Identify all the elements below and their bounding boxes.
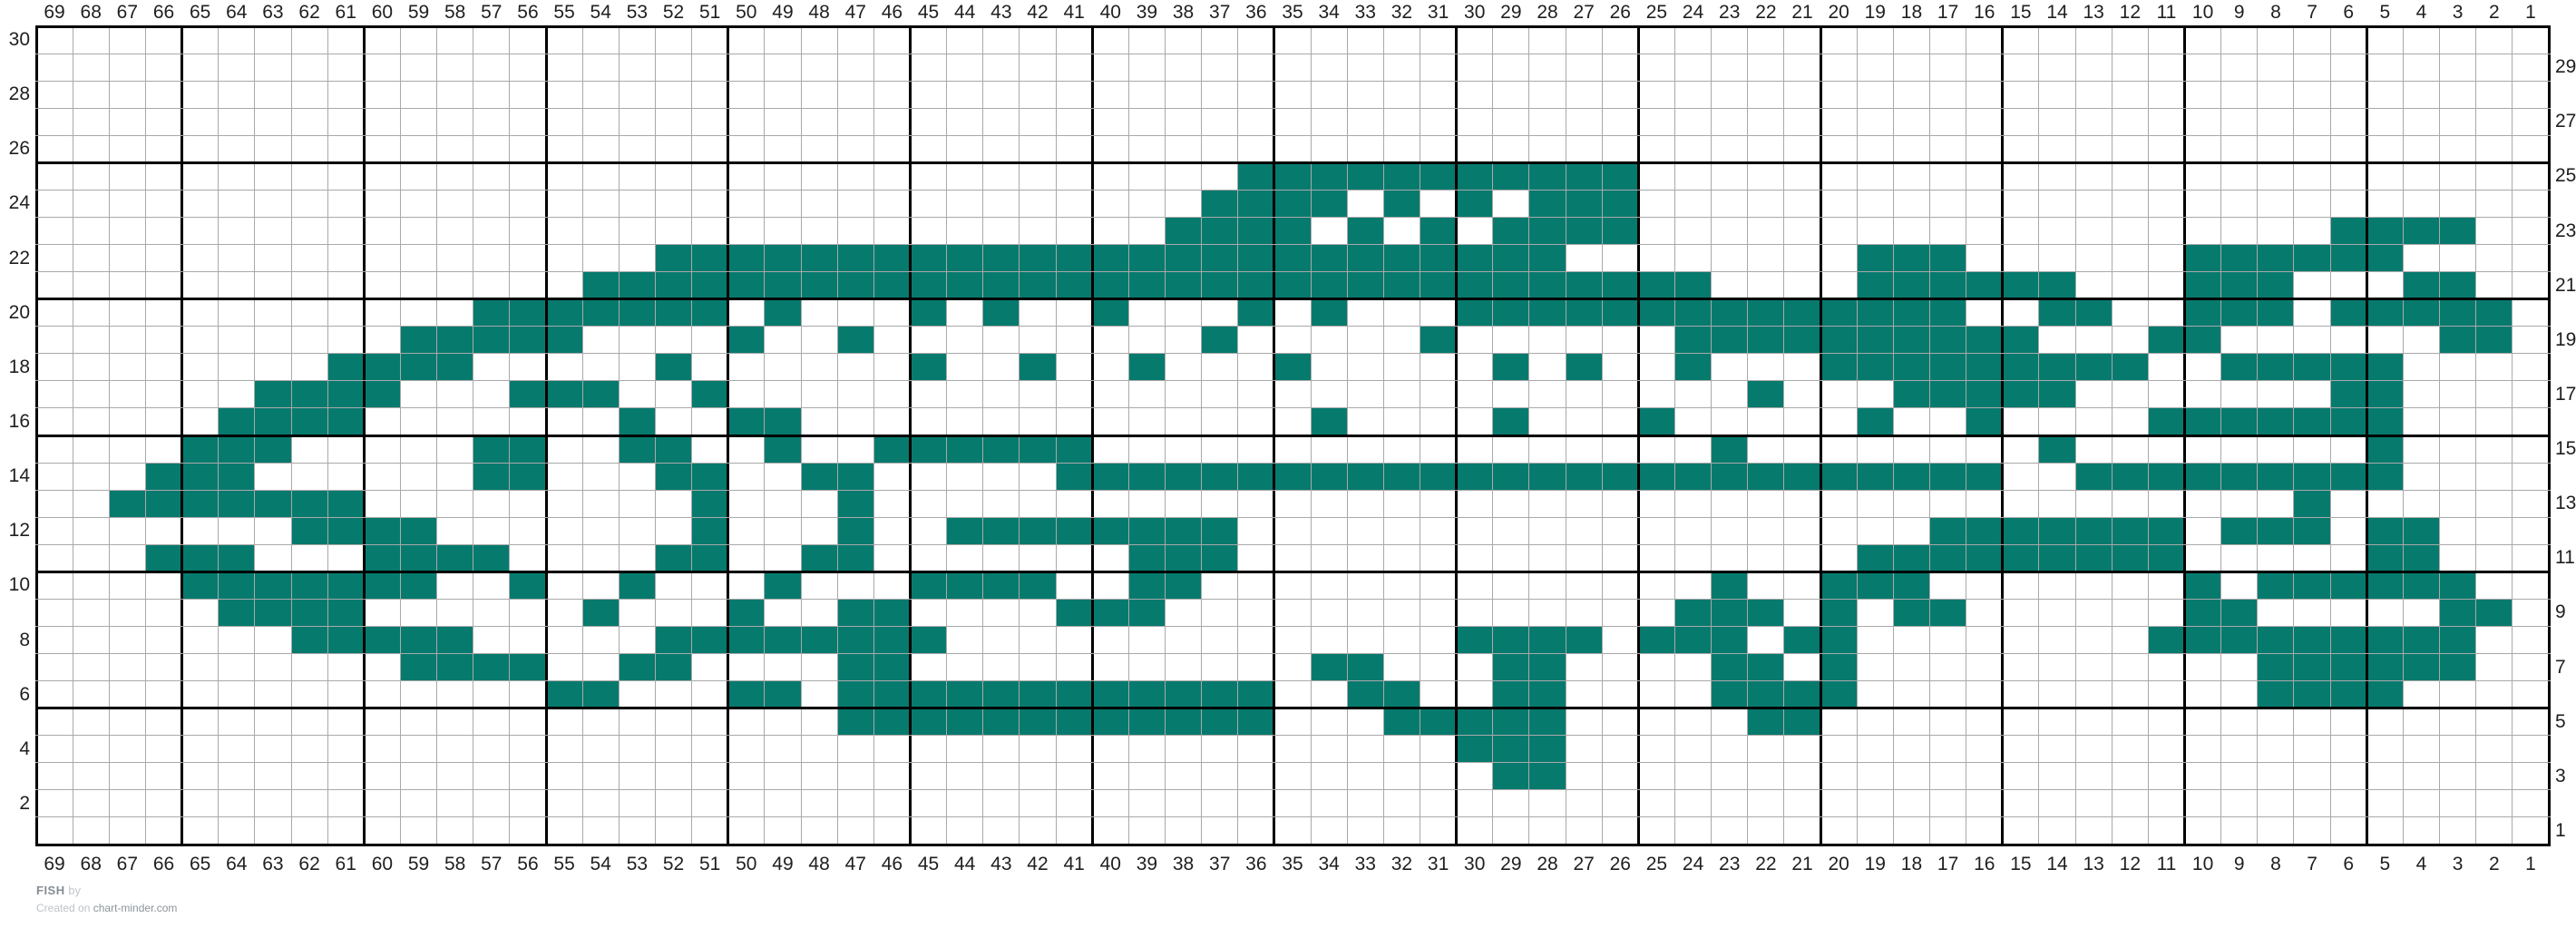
chart-cell[interactable]	[219, 490, 256, 518]
chart-cell[interactable]	[1820, 654, 1858, 682]
chart-cell[interactable]	[1493, 681, 1530, 709]
chart-cell[interactable]	[655, 354, 692, 382]
chart-cell[interactable]	[837, 517, 874, 545]
chart-cell[interactable]	[2366, 354, 2404, 382]
chart-cell[interactable]	[1820, 463, 1858, 491]
chart-cell[interactable]	[1165, 544, 1202, 572]
chart-cell[interactable]	[2185, 599, 2222, 627]
chart-cell[interactable]	[655, 654, 692, 682]
chart-cell[interactable]	[400, 654, 437, 682]
chart-cell[interactable]	[1383, 681, 1420, 709]
chart-cell[interactable]	[1202, 544, 1239, 572]
chart-cell[interactable]	[1347, 217, 1384, 245]
chart-cell[interactable]	[255, 435, 292, 464]
chart-cell[interactable]	[2148, 517, 2185, 545]
chart-cell[interactable]	[873, 435, 911, 464]
chart-cell[interactable]	[1347, 245, 1384, 273]
chart-cell[interactable]	[2003, 544, 2040, 572]
chart-cell[interactable]	[2366, 299, 2404, 327]
chart-cell[interactable]	[1784, 463, 1821, 491]
chart-cell[interactable]	[619, 435, 656, 464]
chart-cell[interactable]	[1457, 708, 1494, 737]
chart-cell[interactable]	[145, 544, 182, 572]
chart-cell[interactable]	[765, 408, 802, 436]
chart-cell[interactable]	[1748, 381, 1785, 409]
chart-cell[interactable]	[2039, 544, 2076, 572]
chart-cell[interactable]	[1056, 599, 1093, 627]
chart-cell[interactable]	[1457, 272, 1494, 300]
chart-cell[interactable]	[1930, 517, 1967, 545]
chart-cell[interactable]	[1529, 626, 1566, 654]
chart-cell[interactable]	[1602, 190, 1639, 218]
chart-cell[interactable]	[2258, 463, 2295, 491]
chart-cell[interactable]	[873, 245, 911, 273]
chart-cell[interactable]	[546, 681, 583, 709]
chart-cell[interactable]	[983, 245, 1020, 273]
chart-cell[interactable]	[1930, 354, 1967, 382]
chart-cell[interactable]	[765, 272, 802, 300]
chart-cell[interactable]	[801, 463, 838, 491]
chart-cell[interactable]	[2440, 327, 2477, 355]
chart-cell[interactable]	[1966, 381, 2004, 409]
site-link[interactable]: chart-minder.com	[93, 902, 178, 914]
chart-cell[interactable]	[1602, 217, 1639, 245]
chart-cell[interactable]	[1202, 463, 1239, 491]
chart-cell[interactable]	[765, 571, 802, 600]
chart-cell[interactable]	[1238, 708, 1275, 737]
chart-cell[interactable]	[1748, 299, 1785, 327]
chart-cell[interactable]	[473, 299, 511, 327]
chart-cell[interactable]	[1238, 162, 1275, 190]
chart-cell[interactable]	[655, 299, 692, 327]
chart-cell[interactable]	[1056, 517, 1093, 545]
chart-cell[interactable]	[1092, 681, 1129, 709]
chart-cell[interactable]	[801, 272, 838, 300]
chart-cell[interactable]	[1930, 245, 1967, 273]
chart-cell[interactable]	[947, 708, 984, 737]
chart-cell[interactable]	[1930, 381, 1967, 409]
chart-cell[interactable]	[1529, 681, 1566, 709]
chart-cell[interactable]	[1311, 463, 1348, 491]
chart-cell[interactable]	[1566, 217, 1603, 245]
chart-cell[interactable]	[437, 626, 474, 654]
chart-cell[interactable]	[1675, 354, 1712, 382]
chart-cell[interactable]	[1092, 299, 1129, 327]
chart-cell[interactable]	[1238, 245, 1275, 273]
chart-cell[interactable]	[582, 599, 620, 627]
chart-cell[interactable]	[655, 544, 692, 572]
chart-cell[interactable]	[2294, 517, 2331, 545]
chart-cell[interactable]	[1202, 217, 1239, 245]
chart-cell[interactable]	[1712, 299, 1749, 327]
chart-cell[interactable]	[1529, 763, 1566, 791]
chart-cell[interactable]	[765, 681, 802, 709]
chart-cell[interactable]	[1457, 463, 1494, 491]
chart-cell[interactable]	[2039, 381, 2076, 409]
chart-cell[interactable]	[1165, 571, 1202, 600]
chart-cell[interactable]	[1857, 272, 1894, 300]
chart-cell[interactable]	[219, 599, 256, 627]
chart-cell[interactable]	[2185, 571, 2222, 600]
chart-cell[interactable]	[2330, 408, 2367, 436]
chart-cell[interactable]	[182, 463, 220, 491]
chart-cell[interactable]	[1165, 708, 1202, 737]
chart-cell[interactable]	[837, 626, 874, 654]
chart-cell[interactable]	[582, 299, 620, 327]
chart-cell[interactable]	[1748, 654, 1785, 682]
chart-cell[interactable]	[2403, 626, 2440, 654]
chart-cell[interactable]	[1092, 245, 1129, 273]
chart-cell[interactable]	[619, 654, 656, 682]
chart-cell[interactable]	[364, 381, 401, 409]
chart-cell[interactable]	[728, 626, 766, 654]
chart-cell[interactable]	[1020, 354, 1057, 382]
chart-cell[interactable]	[1930, 272, 1967, 300]
chart-cell[interactable]	[2003, 381, 2040, 409]
chart-cell[interactable]	[2440, 599, 2477, 627]
chart-cell[interactable]	[2330, 654, 2367, 682]
chart-cell[interactable]	[2366, 517, 2404, 545]
chart-cell[interactable]	[1128, 599, 1166, 627]
chart-cell[interactable]	[1675, 327, 1712, 355]
chart-cell[interactable]	[510, 299, 547, 327]
chart-cell[interactable]	[1529, 736, 1566, 764]
chart-cell[interactable]	[1311, 299, 1348, 327]
chart-cell[interactable]	[1274, 217, 1312, 245]
chart-cell[interactable]	[546, 299, 583, 327]
chart-cell[interactable]	[510, 327, 547, 355]
chart-cell[interactable]	[510, 435, 547, 464]
chart-cell[interactable]	[910, 571, 947, 600]
chart-cell[interactable]	[1493, 217, 1530, 245]
chart-cell[interactable]	[2476, 327, 2513, 355]
chart-cell[interactable]	[2075, 354, 2113, 382]
chart-cell[interactable]	[2185, 299, 2222, 327]
chart-cell[interactable]	[983, 435, 1020, 464]
chart-cell[interactable]	[2294, 681, 2331, 709]
chart-cell[interactable]	[1857, 299, 1894, 327]
chart-cell[interactable]	[1966, 354, 2004, 382]
chart-cell[interactable]	[1820, 681, 1858, 709]
chart-cell[interactable]	[1311, 408, 1348, 436]
chart-cell[interactable]	[2258, 299, 2295, 327]
chart-cell[interactable]	[1638, 272, 1675, 300]
chart-cell[interactable]	[2112, 354, 2149, 382]
chart-cell[interactable]	[1529, 245, 1566, 273]
chart-cell[interactable]	[1493, 245, 1530, 273]
chart-cell[interactable]	[1857, 571, 1894, 600]
chart-cell[interactable]	[1274, 190, 1312, 218]
chart-cell[interactable]	[837, 599, 874, 627]
chart-cell[interactable]	[510, 654, 547, 682]
chart-cell[interactable]	[2330, 381, 2367, 409]
chart-cell[interactable]	[910, 354, 947, 382]
chart-cell[interactable]	[1128, 544, 1166, 572]
chart-cell[interactable]	[1238, 299, 1275, 327]
chart-cell[interactable]	[2330, 217, 2367, 245]
chart-cell[interactable]	[1238, 217, 1275, 245]
chart-cell[interactable]	[1930, 299, 1967, 327]
chart-cell[interactable]	[2148, 626, 2185, 654]
chart-cell[interactable]	[2258, 626, 2295, 654]
chart-cell[interactable]	[1893, 245, 1930, 273]
chart-cell[interactable]	[837, 681, 874, 709]
chart-cell[interactable]	[473, 654, 511, 682]
chart-cell[interactable]	[910, 626, 947, 654]
chart-cell[interactable]	[1202, 517, 1239, 545]
chart-cell[interactable]	[1493, 626, 1530, 654]
chart-cell[interactable]	[1056, 463, 1093, 491]
chart-cell[interactable]	[1893, 599, 1930, 627]
chart-cell[interactable]	[1529, 162, 1566, 190]
chart-cell[interactable]	[1457, 162, 1494, 190]
chart-cell[interactable]	[1857, 327, 1894, 355]
chart-cell[interactable]	[1274, 245, 1312, 273]
chart-cell[interactable]	[2366, 571, 2404, 600]
chart-cell[interactable]	[1128, 463, 1166, 491]
chart-cell[interactable]	[837, 654, 874, 682]
chart-cell[interactable]	[327, 381, 365, 409]
chart-cell[interactable]	[983, 517, 1020, 545]
chart-cell[interactable]	[1566, 162, 1603, 190]
chart-cell[interactable]	[1457, 299, 1494, 327]
chart-cell[interactable]	[728, 272, 766, 300]
chart-cell[interactable]	[2003, 354, 2040, 382]
chart-cell[interactable]	[2366, 381, 2404, 409]
chart-cell[interactable]	[910, 435, 947, 464]
chart-cell[interactable]	[1383, 272, 1420, 300]
chart-cell[interactable]	[2221, 463, 2259, 491]
chart-cell[interactable]	[1056, 435, 1093, 464]
chart-cell[interactable]	[2039, 435, 2076, 464]
chart-cell[interactable]	[2440, 571, 2477, 600]
chart-cell[interactable]	[2039, 299, 2076, 327]
chart-cell[interactable]	[1602, 162, 1639, 190]
chart-cell[interactable]	[291, 408, 328, 436]
chart-cell[interactable]	[1893, 544, 1930, 572]
chart-cell[interactable]	[1675, 463, 1712, 491]
chart-cell[interactable]	[2258, 571, 2295, 600]
chart-cell[interactable]	[1128, 708, 1166, 737]
chart-cell[interactable]	[1529, 272, 1566, 300]
chart-cell[interactable]	[1420, 245, 1458, 273]
chart-cell[interactable]	[1128, 681, 1166, 709]
chart-cell[interactable]	[728, 599, 766, 627]
chart-cell[interactable]	[327, 517, 365, 545]
chart-cell[interactable]	[2258, 408, 2295, 436]
chart-cell[interactable]	[1165, 517, 1202, 545]
chart-cell[interactable]	[1857, 544, 1894, 572]
chart-cell[interactable]	[1165, 245, 1202, 273]
chart-cell[interactable]	[1493, 408, 1530, 436]
chart-cell[interactable]	[1893, 381, 1930, 409]
chart-cell[interactable]	[2221, 626, 2259, 654]
chart-cell[interactable]	[1020, 272, 1057, 300]
chart-cell[interactable]	[619, 272, 656, 300]
chart-cell[interactable]	[291, 626, 328, 654]
chart-cell[interactable]	[1529, 190, 1566, 218]
chart-cell[interactable]	[510, 381, 547, 409]
chart-cell[interactable]	[728, 245, 766, 273]
chart-cell[interactable]	[1820, 354, 1858, 382]
chart-cell[interactable]	[1712, 626, 1749, 654]
chart-cell[interactable]	[291, 517, 328, 545]
chart-cell[interactable]	[1857, 245, 1894, 273]
chart-cell[interactable]	[1274, 272, 1312, 300]
chart-cell[interactable]	[2366, 681, 2404, 709]
chart-cell[interactable]	[1311, 190, 1348, 218]
chart-cell[interactable]	[1675, 599, 1712, 627]
chart-cell[interactable]	[1566, 354, 1603, 382]
chart-cell[interactable]	[873, 654, 911, 682]
chart-cell[interactable]	[1128, 272, 1166, 300]
chart-cell[interactable]	[728, 408, 766, 436]
chart-cell[interactable]	[1383, 190, 1420, 218]
chart-cell[interactable]	[400, 626, 437, 654]
chart-cell[interactable]	[1529, 217, 1566, 245]
chart-cell[interactable]	[1383, 245, 1420, 273]
chart-cell[interactable]	[837, 327, 874, 355]
chart-cell[interactable]	[873, 708, 911, 737]
chart-cell[interactable]	[1202, 272, 1239, 300]
chart-cell[interactable]	[1820, 599, 1858, 627]
chart-cell[interactable]	[655, 626, 692, 654]
chart-cell[interactable]	[145, 490, 182, 518]
chart-cell[interactable]	[1056, 681, 1093, 709]
chart-cell[interactable]	[364, 354, 401, 382]
chart-cell[interactable]	[1420, 272, 1458, 300]
chart-cell[interactable]	[692, 544, 729, 572]
chart-cell[interactable]	[2294, 463, 2331, 491]
chart-cell[interactable]	[2476, 599, 2513, 627]
chart-cell[interactable]	[400, 571, 437, 600]
chart-cell[interactable]	[1748, 599, 1785, 627]
chart-cell[interactable]	[437, 544, 474, 572]
chart-cell[interactable]	[1457, 736, 1494, 764]
chart-cell[interactable]	[2221, 408, 2259, 436]
chart-cell[interactable]	[1493, 162, 1530, 190]
chart-cell[interactable]	[364, 571, 401, 600]
chart-cell[interactable]	[1202, 245, 1239, 273]
chart-cell[interactable]	[291, 571, 328, 600]
chart-cell[interactable]	[692, 626, 729, 654]
chart-cell[interactable]	[2330, 299, 2367, 327]
chart-cell[interactable]	[1784, 299, 1821, 327]
chart-cell[interactable]	[1493, 354, 1530, 382]
chart-cell[interactable]	[619, 408, 656, 436]
chart-cell[interactable]	[2148, 544, 2185, 572]
chart-cell[interactable]	[437, 327, 474, 355]
chart-cell[interactable]	[692, 463, 729, 491]
chart-cell[interactable]	[873, 272, 911, 300]
chart-cell[interactable]	[182, 571, 220, 600]
chart-cell[interactable]	[219, 435, 256, 464]
chart-cell[interactable]	[2258, 354, 2295, 382]
chart-cell[interactable]	[400, 354, 437, 382]
chart-cell[interactable]	[2366, 435, 2404, 464]
chart-cell[interactable]	[655, 245, 692, 273]
chart-cell[interactable]	[255, 599, 292, 627]
chart-cell[interactable]	[364, 626, 401, 654]
chart-cell[interactable]	[910, 681, 947, 709]
chart-cell[interactable]	[473, 435, 511, 464]
chart-cell[interactable]	[692, 272, 729, 300]
chart-cell[interactable]	[2185, 626, 2222, 654]
chart-cell[interactable]	[1638, 408, 1675, 436]
chart-cell[interactable]	[327, 626, 365, 654]
chart-cell[interactable]	[1529, 654, 1566, 682]
chart-cell[interactable]	[1966, 517, 2004, 545]
chart-cell[interactable]	[1092, 463, 1129, 491]
chart-cell[interactable]	[2440, 217, 2477, 245]
chart-cell[interactable]	[765, 245, 802, 273]
chart-cell[interactable]	[983, 299, 1020, 327]
chart-cell[interactable]	[1165, 272, 1202, 300]
chart-cell[interactable]	[619, 571, 656, 600]
chart-cell[interactable]	[2294, 490, 2331, 518]
chart-cell[interactable]	[1128, 571, 1166, 600]
chart-cell[interactable]	[2440, 272, 2477, 300]
chart-cell[interactable]	[219, 544, 256, 572]
chart-cell[interactable]	[1820, 327, 1858, 355]
chart-cell[interactable]	[1748, 708, 1785, 737]
chart-cell[interactable]	[2330, 681, 2367, 709]
chart-cell[interactable]	[655, 435, 692, 464]
chart-cell[interactable]	[2185, 408, 2222, 436]
chart-cell[interactable]	[327, 354, 365, 382]
chart-cell[interactable]	[1128, 354, 1166, 382]
chart-cell[interactable]	[2440, 654, 2477, 682]
chart-cell[interactable]	[1930, 327, 1967, 355]
chart-cell[interactable]	[1566, 190, 1603, 218]
chart-cell[interactable]	[1020, 571, 1057, 600]
chart-cell[interactable]	[1493, 763, 1530, 791]
chart-cell[interactable]	[1602, 299, 1639, 327]
chart-cell[interactable]	[1857, 463, 1894, 491]
chart-cell[interactable]	[1092, 272, 1129, 300]
chart-cell[interactable]	[692, 490, 729, 518]
chart-cell[interactable]	[1529, 463, 1566, 491]
chart-cell[interactable]	[1748, 327, 1785, 355]
chart-cell[interactable]	[947, 681, 984, 709]
chart-cell[interactable]	[109, 490, 146, 518]
chart-cell[interactable]	[1420, 327, 1458, 355]
chart-cell[interactable]	[255, 571, 292, 600]
chart-cell[interactable]	[2075, 299, 2113, 327]
chart-cell[interactable]	[1238, 190, 1275, 218]
chart-cell[interactable]	[219, 408, 256, 436]
chart-cell[interactable]	[1274, 162, 1312, 190]
chart-cell[interactable]	[1202, 681, 1239, 709]
chart-cell[interactable]	[1020, 517, 1057, 545]
chart-cell[interactable]	[1020, 245, 1057, 273]
chart-cell[interactable]	[873, 599, 911, 627]
chart-cell[interactable]	[1857, 408, 1894, 436]
chart-cell[interactable]	[546, 381, 583, 409]
chart-cell[interactable]	[1712, 327, 1749, 355]
chart-cell[interactable]	[582, 272, 620, 300]
chart-cell[interactable]	[364, 544, 401, 572]
chart-cell[interactable]	[182, 544, 220, 572]
chart-cell[interactable]	[2221, 599, 2259, 627]
chart-cell[interactable]	[1820, 299, 1858, 327]
chart-cell[interactable]	[2112, 517, 2149, 545]
chart-cell[interactable]	[1566, 299, 1603, 327]
chart-cell[interactable]	[1202, 708, 1239, 737]
chart-cell[interactable]	[2185, 272, 2222, 300]
chart-cell[interactable]	[1274, 354, 1312, 382]
chart-cell[interactable]	[327, 599, 365, 627]
